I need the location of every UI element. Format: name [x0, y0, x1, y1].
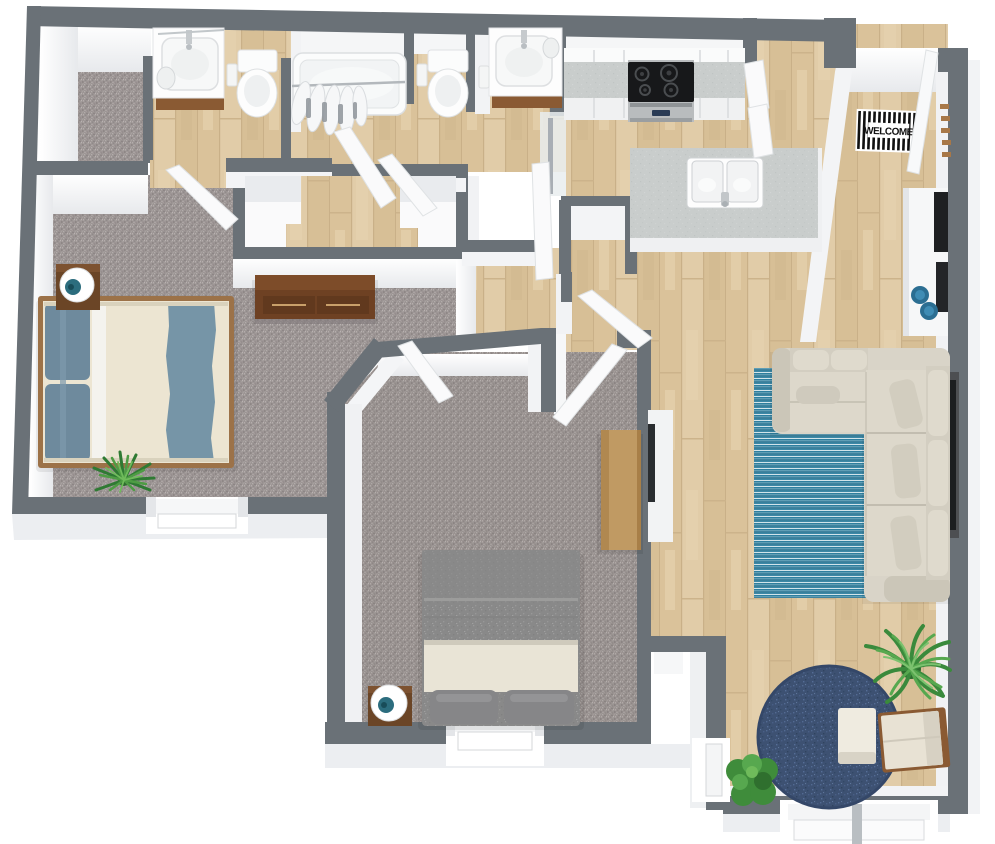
- svg-text:WELCOME: WELCOME: [864, 126, 914, 139]
